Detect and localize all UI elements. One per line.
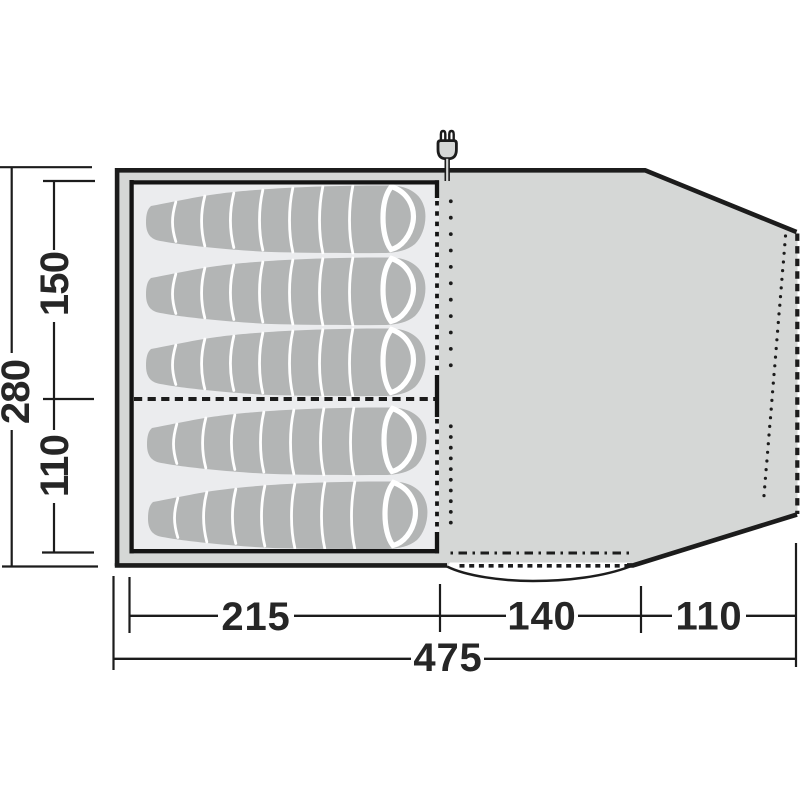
svg-text:280: 280 [0,360,38,424]
svg-text:110: 110 [33,435,77,497]
svg-text:215: 215 [221,595,290,639]
svg-text:475: 475 [413,636,482,680]
svg-text:110: 110 [676,595,743,639]
svg-text:140: 140 [507,595,576,639]
svg-text:150: 150 [33,252,77,316]
